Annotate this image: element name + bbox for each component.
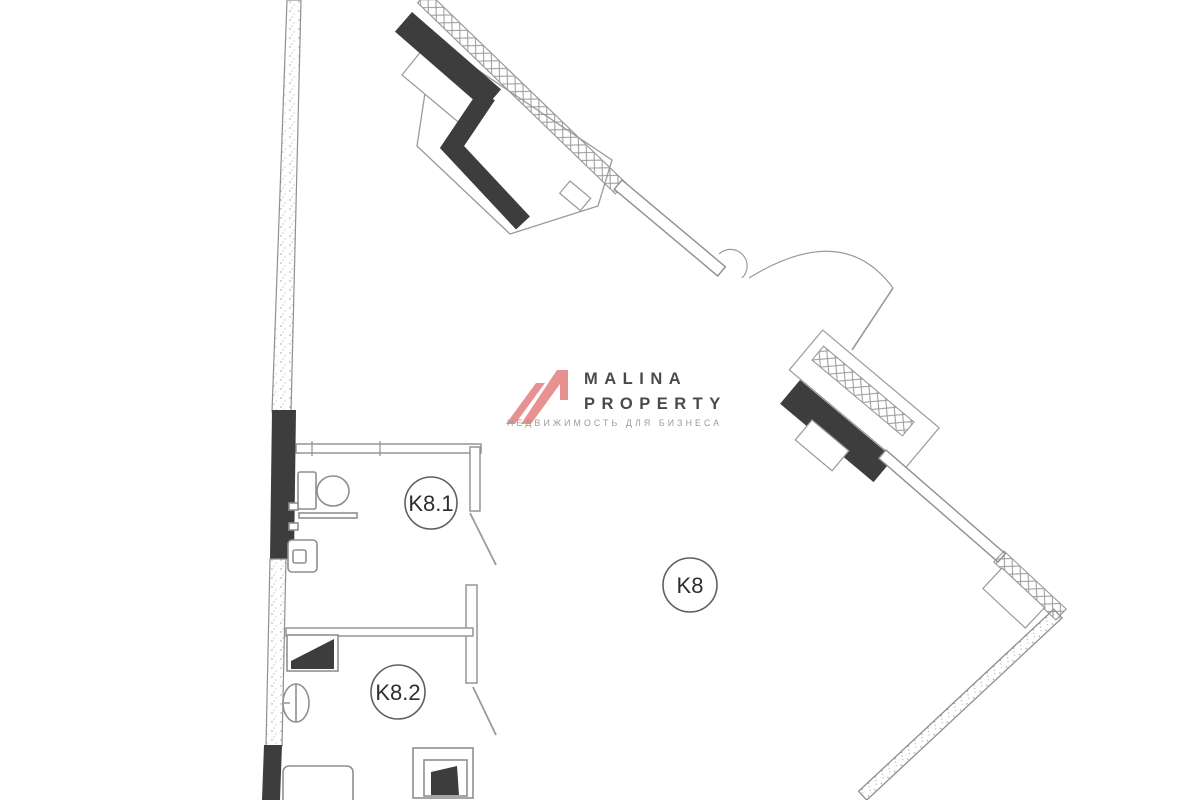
floor-plan-svg: K8 K8.1 K8.2 MALINA PROPERTY НЕДВИЖИМОСТ… (0, 0, 1200, 800)
logo-brand-line2: PROPERTY (584, 395, 727, 413)
room-label-k8: K8 (663, 558, 717, 612)
door-leaf (473, 687, 496, 735)
door-leaf (470, 513, 496, 565)
room-label-k81-text: K8.1 (408, 491, 453, 516)
room-label-k82: K8.2 (371, 665, 425, 719)
lower-right-diagonal-wall (859, 609, 1062, 800)
room-label-k8-text: K8 (677, 573, 704, 598)
small-door-swing-arc (719, 249, 747, 278)
logo-mark-icon (506, 370, 568, 424)
left-wall-dark-segment-lower (262, 745, 282, 800)
entrance-door (719, 249, 893, 350)
counter-icon (287, 635, 338, 671)
equipment-icon (413, 748, 473, 798)
door-swing-arc (749, 251, 893, 288)
sink-icon (288, 540, 317, 572)
logo-tagline: НЕДВИЖИМОСТЬ ДЛЯ БИЗНЕСА (507, 418, 722, 428)
right-diagonal-wall (780, 330, 1066, 628)
left-exterior-wall (262, 0, 301, 800)
logo: MALINA PROPERTY НЕДВИЖИМОСТЬ ДЛЯ БИЗНЕСА (506, 370, 727, 428)
shower-tray-icon (283, 766, 353, 800)
washbasin-icon (283, 684, 309, 722)
logo-brand-line1: MALINA (584, 370, 687, 388)
room-label-k82-text: K8.2 (375, 680, 420, 705)
toilet-icon (289, 472, 357, 530)
door-leaf (852, 288, 893, 350)
floor-plan-page: K8 K8.1 K8.2 MALINA PROPERTY НЕДВИЖИМОСТ… (0, 0, 1200, 800)
room-label-k81: K8.1 (405, 477, 457, 529)
left-wall-dark-segment (270, 410, 296, 559)
